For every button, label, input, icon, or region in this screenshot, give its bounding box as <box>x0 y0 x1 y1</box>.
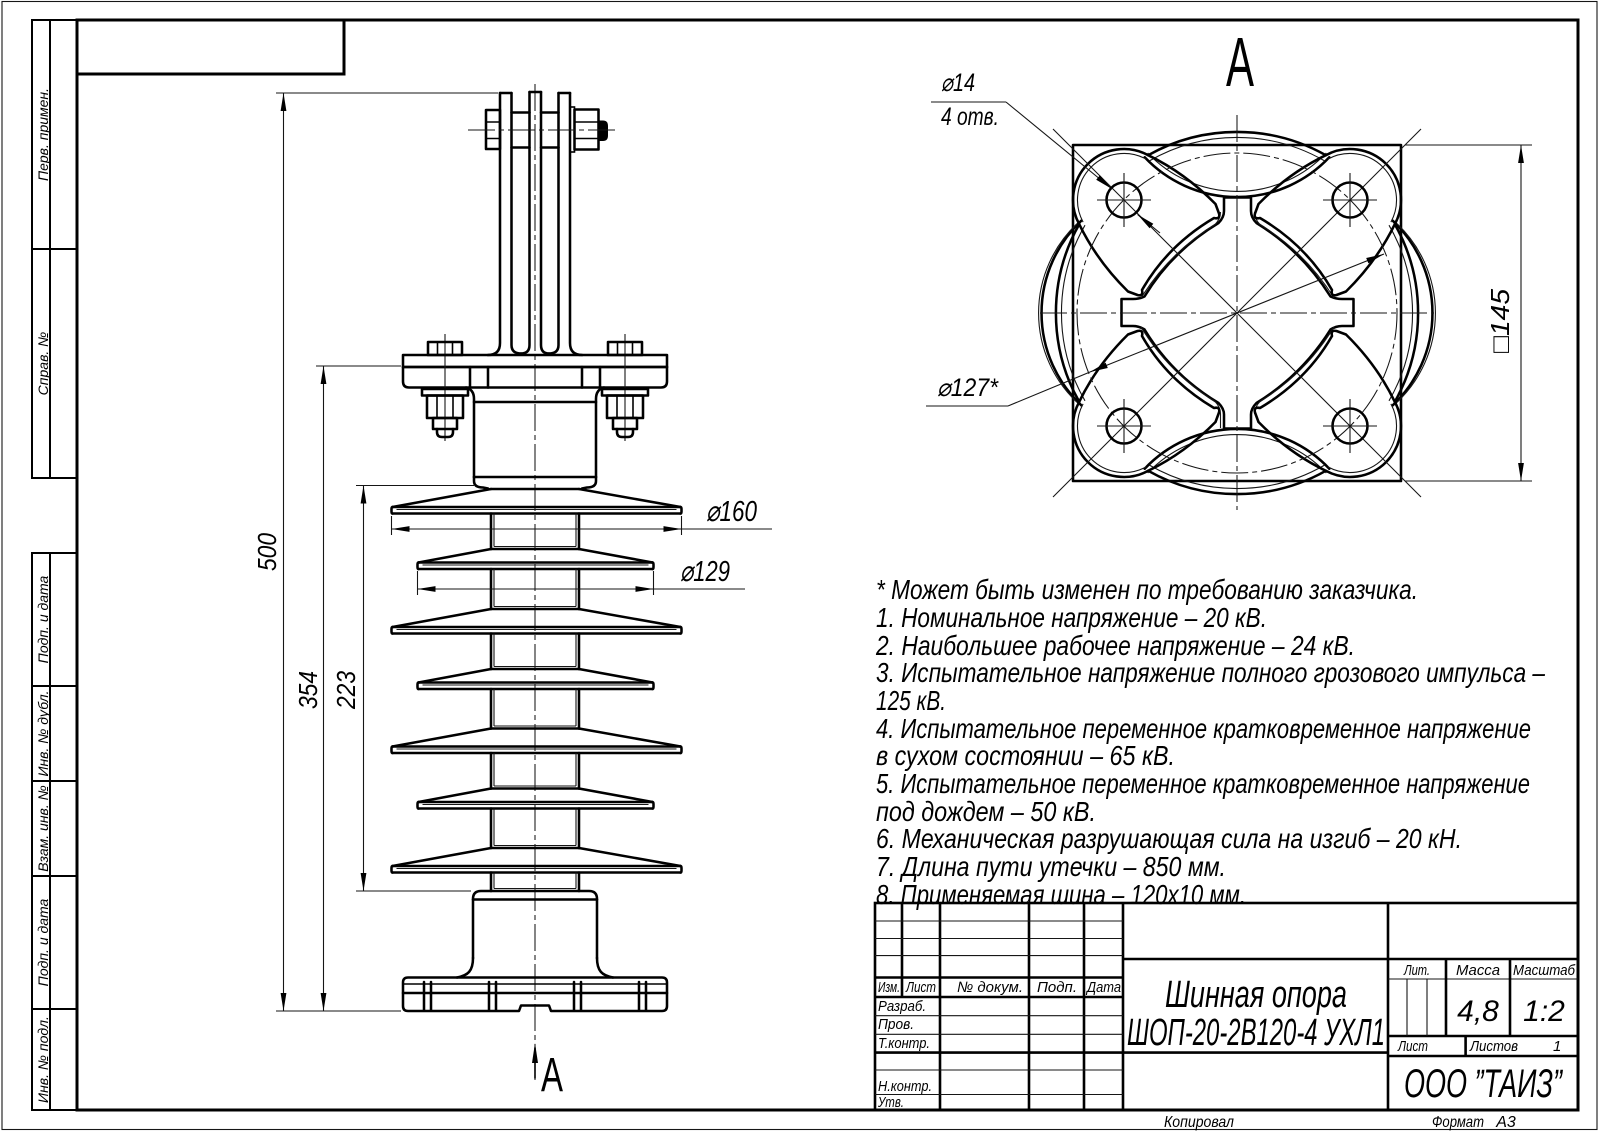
svg-text:Подп.: Подп. <box>1037 979 1077 996</box>
svg-text:ШОП-20-2В120-4 УХЛ1: ШОП-20-2В120-4 УХЛ1 <box>1127 1012 1385 1054</box>
svg-text:Инв. № дубл.: Инв. № дубл. <box>35 690 51 776</box>
svg-text:А: А <box>541 1049 563 1102</box>
svg-text:Справ. №: Справ. № <box>35 332 51 396</box>
svg-text:Листов: Листов <box>1469 1038 1518 1055</box>
svg-text:8. Применяемая шина – 120х10 м: 8. Применяемая шина – 120х10 мм. <box>876 879 1246 910</box>
svg-text:Подп. и дата: Подп. и дата <box>35 898 51 986</box>
svg-text:Лист: Лист <box>905 979 936 996</box>
svg-text:Взам. инв. №: Взам. инв. № <box>35 785 51 872</box>
svg-text:223: 223 <box>331 671 361 710</box>
svg-text:125 кВ.: 125 кВ. <box>876 685 946 716</box>
svg-text:⌀160: ⌀160 <box>706 496 757 528</box>
svg-text:3. Испытательное напряжение по: 3. Испытательное напряжение полного гроз… <box>876 657 1545 688</box>
svg-text:Т.контр.: Т.контр. <box>878 1035 930 1052</box>
svg-text:№ докум.: № докум. <box>957 979 1023 996</box>
svg-text:Изм.: Изм. <box>878 979 900 996</box>
svg-text:ООО ”ТАИЗ”: ООО ”ТАИЗ” <box>1404 1062 1563 1106</box>
svg-text:Масштаб: Масштаб <box>1513 962 1575 979</box>
svg-text:⌀129: ⌀129 <box>680 556 730 588</box>
svg-text:354: 354 <box>293 671 323 709</box>
svg-text:Формат: Формат <box>1432 1114 1484 1131</box>
svg-text:Масса: Масса <box>1456 962 1500 979</box>
svg-text:1: 1 <box>1553 1038 1561 1055</box>
svg-text:4,8: 4,8 <box>1457 995 1499 1028</box>
svg-text:А3: А3 <box>1495 1114 1516 1131</box>
svg-text:5. Испытательное переменное кр: 5. Испытательное переменное кратковремен… <box>876 768 1530 799</box>
svg-text:4 отв.: 4 отв. <box>941 103 999 131</box>
svg-text:Инв. № подл.: Инв. № подл. <box>35 1016 51 1103</box>
svg-text:⌀14: ⌀14 <box>941 69 975 97</box>
svg-text:□145: □145 <box>1485 288 1515 353</box>
svg-text:Копировал: Копировал <box>1164 1114 1234 1131</box>
svg-text:⌀127*: ⌀127* <box>937 374 999 402</box>
svg-text:7. Длина пути утечки – 850 мм.: 7. Длина пути утечки – 850 мм. <box>876 851 1226 882</box>
svg-text:6. Механическая разрушающая си: 6. Механическая разрушающая сила на изги… <box>876 823 1462 854</box>
svg-text:Подп. и дата: Подп. и дата <box>35 575 51 663</box>
svg-text:Разраб.: Разраб. <box>878 998 926 1015</box>
svg-text:А: А <box>1226 23 1254 101</box>
svg-text:Шинная опора: Шинная опора <box>1165 974 1347 1016</box>
svg-text:Перв. примен.: Перв. примен. <box>35 88 51 181</box>
svg-text:500: 500 <box>252 533 282 571</box>
svg-text:1:2: 1:2 <box>1523 995 1565 1028</box>
svg-text:1. Номинальное напряжение – 20: 1. Номинальное напряжение – 20 кВ. <box>876 602 1267 633</box>
svg-text:Дата: Дата <box>1085 979 1121 996</box>
svg-text:Н.контр.: Н.контр. <box>878 1078 932 1095</box>
svg-text:* Может быть изменен по требов: * Может быть изменен по требованию заказ… <box>876 574 1418 605</box>
svg-text:Лист: Лист <box>1397 1038 1428 1055</box>
svg-text:Пров.: Пров. <box>878 1016 914 1033</box>
svg-text:Утв.: Утв. <box>877 1094 904 1111</box>
svg-text:Лит.: Лит. <box>1403 962 1430 979</box>
svg-text:в сухом состоянии – 65 кВ.: в сухом состоянии – 65 кВ. <box>876 740 1175 771</box>
